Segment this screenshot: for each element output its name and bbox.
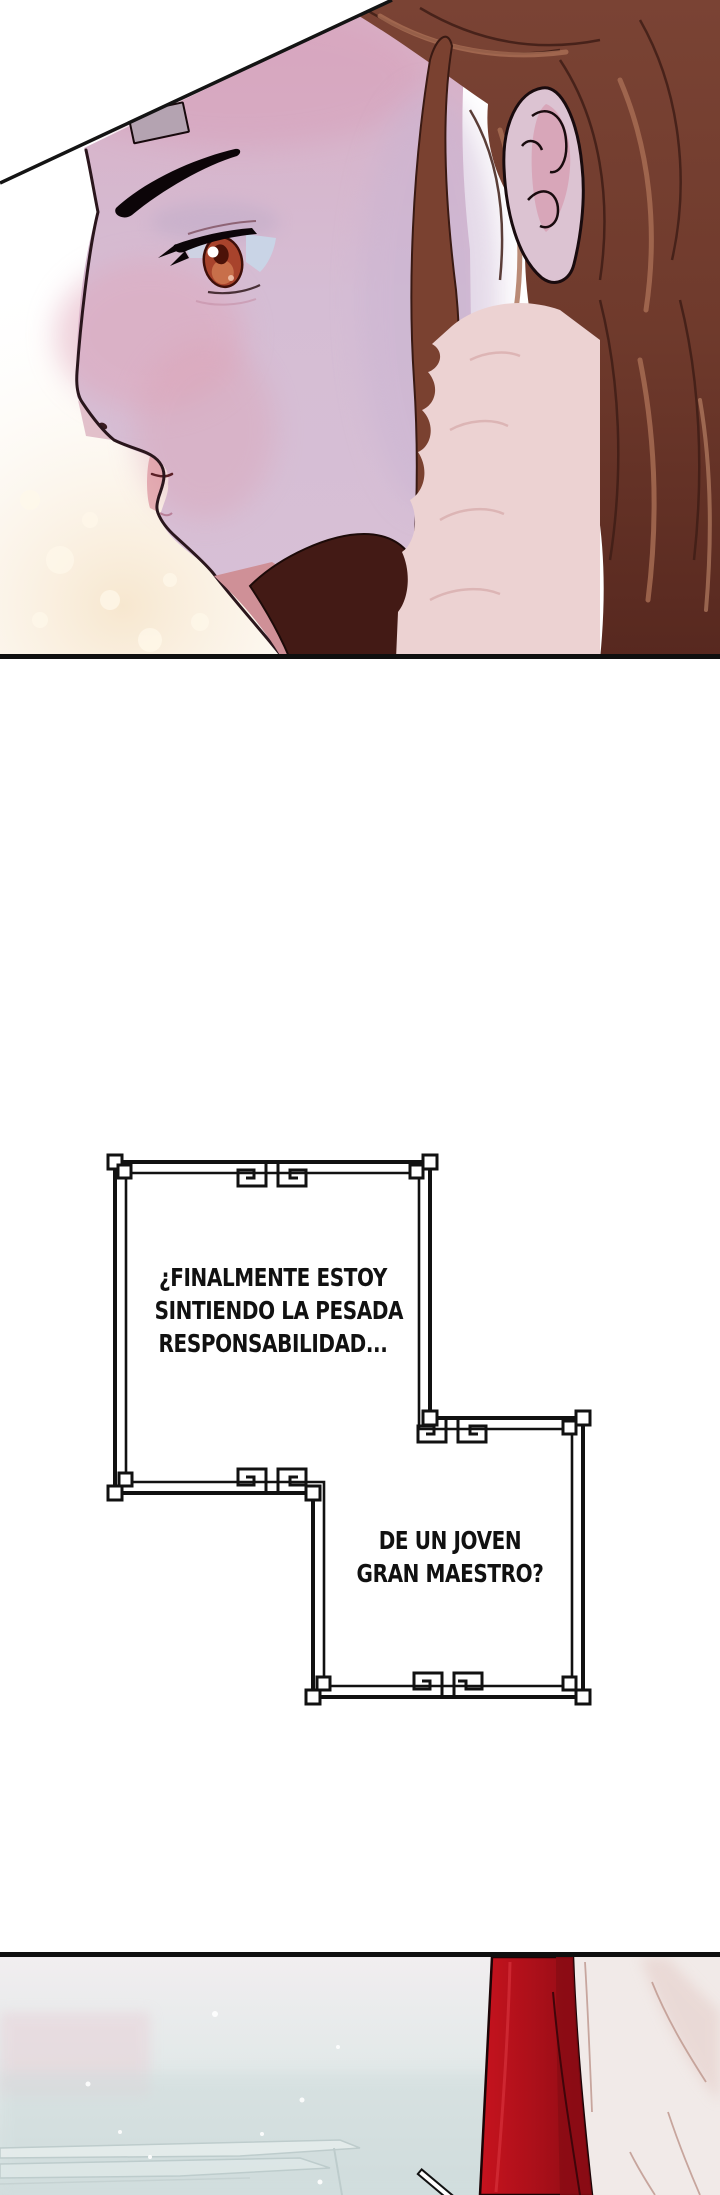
speech-text-1-line: RESPONSABILIDAD... bbox=[155, 1327, 392, 1360]
speech-frame bbox=[80, 1130, 620, 1730]
speech-text-1-line: ¿FINALMENTE ESTOY bbox=[155, 1261, 392, 1294]
speech-box bbox=[80, 1130, 620, 1730]
red-robe bbox=[480, 1957, 592, 2195]
panel-border-bottom bbox=[0, 654, 720, 659]
white-robe bbox=[573, 1957, 720, 2195]
panel-bottom bbox=[0, 1952, 720, 2195]
speech-text-1: ¿FINALMENTE ESTOY SINTIENDO LA PESADA RE… bbox=[155, 1261, 392, 1360]
speech-text-2-line: DE UN JOVEN bbox=[354, 1524, 546, 1557]
bottom-artwork bbox=[0, 1952, 720, 2195]
speech-text-2: DE UN JOVEN GRAN MAESTRO? bbox=[354, 1524, 546, 1590]
speech-text-2-line: GRAN MAESTRO? bbox=[354, 1557, 546, 1590]
speech-text-1-line: SINTIENDO LA PESADA bbox=[155, 1294, 392, 1327]
panel-border-top bbox=[0, 1952, 720, 1957]
comic-page: ¿FINALMENTE ESTOY SINTIENDO LA PESADA RE… bbox=[0, 0, 720, 2195]
panel-portrait bbox=[0, 0, 720, 659]
portrait-artwork bbox=[0, 0, 720, 659]
